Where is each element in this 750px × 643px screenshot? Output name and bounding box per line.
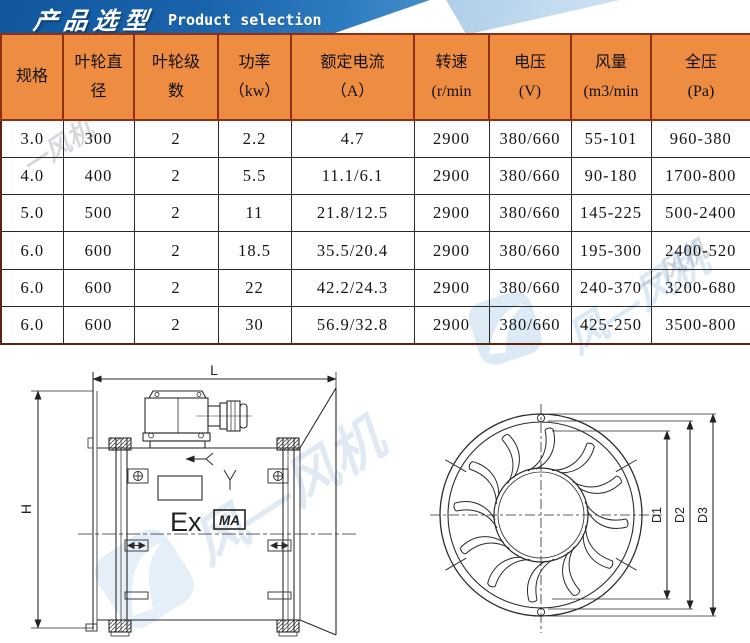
table-cell: 11 xyxy=(218,195,291,232)
header-line2: (r/min xyxy=(415,82,488,101)
table-row: 5.050021121.8/12.52900380/660145-225500-… xyxy=(1,195,750,232)
header-line1: 额定电流 xyxy=(292,53,413,72)
table-cell: 4.7 xyxy=(291,120,414,157)
table-cell: 380/660 xyxy=(489,269,571,306)
table-header-cell: 风量(m3/min xyxy=(571,34,651,120)
header-line1: 规格 xyxy=(2,67,62,86)
table-cell: 2 xyxy=(134,120,218,157)
header-line2: 径 xyxy=(64,82,133,101)
table-cell: 2900 xyxy=(414,232,489,269)
svg-text:MA: MA xyxy=(219,513,240,528)
table-header-cell: 电压(V) xyxy=(489,34,571,120)
table-header: 规格叶轮直径叶轮级数功率（kw）额定电流（A）转速(r/min电压(V)风量(m… xyxy=(1,34,750,120)
table-cell: 30 xyxy=(218,307,291,344)
table-cell: 5.5 xyxy=(218,157,291,194)
dim-label-length: L xyxy=(210,362,218,378)
dim-label-height: H xyxy=(18,504,34,514)
table-cell: 2900 xyxy=(414,120,489,157)
table-header-cell: 叶轮直径 xyxy=(63,34,134,120)
table-header-cell: 规格 xyxy=(1,34,63,120)
cable-gland xyxy=(196,401,252,431)
clamp xyxy=(128,469,288,483)
table-cell: 90-180 xyxy=(571,157,651,194)
table-cell: 960-380 xyxy=(651,120,750,157)
table-cell: 1700-800 xyxy=(651,157,750,194)
table-cell: 380/660 xyxy=(489,232,571,269)
table-cell: 2 xyxy=(134,195,218,232)
page-title: 产品选型 xyxy=(32,1,157,36)
banner: 产品选型 Product selection xyxy=(0,0,750,34)
table-header-cell: 全压(Pa) xyxy=(651,34,750,120)
table-cell: 380/660 xyxy=(489,157,571,194)
table-cell: 2900 xyxy=(414,307,489,344)
table-row: 6.0600218.535.5/20.42900380/660195-30024… xyxy=(1,232,750,269)
header-line1: 叶轮级 xyxy=(135,53,217,72)
table-cell: 2900 xyxy=(414,269,489,306)
impeller-front-view-drawing: D1 D2 D3 xyxy=(380,358,750,643)
table-header-cell: 叶轮级数 xyxy=(134,34,218,120)
table-cell: 2400-520 xyxy=(651,232,750,269)
table-cell: 35.5/20.4 xyxy=(291,232,414,269)
fan-side-view-drawing: L H Ex MA xyxy=(0,358,380,643)
table-row: 6.060023056.9/32.82900380/660425-2503500… xyxy=(1,307,750,344)
header-line1: 全压 xyxy=(652,53,750,72)
header-line2: 数 xyxy=(135,82,217,101)
header-line2: (m3/min xyxy=(572,82,650,101)
header-line1: 电压 xyxy=(490,53,570,72)
header-line1: 功率 xyxy=(219,53,290,72)
table-cell: 5.0 xyxy=(1,195,63,232)
table-cell: 145-225 xyxy=(571,195,651,232)
table-cell: 2 xyxy=(134,232,218,269)
header-line1: 转速 xyxy=(415,53,488,72)
table-cell: 300 xyxy=(63,120,134,157)
table-cell: 55-101 xyxy=(571,120,651,157)
table-cell: 195-300 xyxy=(571,232,651,269)
table-cell: 500-2400 xyxy=(651,195,750,232)
table-header-row: 规格叶轮直径叶轮级数功率（kw）额定电流（A）转速(r/min电压(V)风量(m… xyxy=(1,34,750,120)
table-cell: 2 xyxy=(134,307,218,344)
header-line1: 风量 xyxy=(572,53,650,72)
weld-symbol xyxy=(186,453,236,490)
table-cell: 3500-800 xyxy=(651,307,750,344)
name-plate xyxy=(158,476,202,500)
table-row: 3.030022.24.72900380/66055-101960-380 xyxy=(1,120,750,157)
table-row: 6.060022242.2/24.32900380/660240-3703200… xyxy=(1,269,750,306)
table-cell: 2 xyxy=(134,157,218,194)
header-line1: 叶轮直 xyxy=(64,53,133,72)
table-row: 4.040025.511.1/6.12900380/66090-1801700-… xyxy=(1,157,750,194)
table-cell: 42.2/24.3 xyxy=(291,269,414,306)
table-cell: 18.5 xyxy=(218,232,291,269)
table-cell: 22 xyxy=(218,269,291,306)
table-cell: 380/660 xyxy=(489,195,571,232)
table-header-cell: 功率（kw） xyxy=(218,34,291,120)
table-cell: 2 xyxy=(134,269,218,306)
table-cell: 2900 xyxy=(414,157,489,194)
table-cell: 21.8/12.5 xyxy=(291,195,414,232)
ex-marking: Ex xyxy=(170,507,202,537)
table-cell: 6.0 xyxy=(1,269,63,306)
product-selection-table: 规格叶轮直径叶轮级数功率（kw）额定电流（A）转速(r/min电压(V)风量(m… xyxy=(0,33,750,345)
header-line2: (Pa) xyxy=(652,82,750,101)
header-line2: （kw） xyxy=(219,82,290,101)
table-cell: 425-250 xyxy=(571,307,651,344)
table-cell: 3.0 xyxy=(1,120,63,157)
table-body: 3.030022.24.72900380/66055-101960-3804.0… xyxy=(1,120,750,344)
table-cell: 2.2 xyxy=(218,120,291,157)
table-cell: 600 xyxy=(63,269,134,306)
dim-label-d1: D1 xyxy=(650,507,664,523)
table-cell: 380/660 xyxy=(489,120,571,157)
table-header-cell: 额定电流（A） xyxy=(291,34,414,120)
header-line2: （A） xyxy=(292,82,413,101)
table-cell: 11.1/6.1 xyxy=(291,157,414,194)
table-cell: 6.0 xyxy=(1,232,63,269)
header-line2: (V) xyxy=(490,82,570,101)
technical-drawings: L H Ex MA xyxy=(0,358,750,643)
ma-marking: MA xyxy=(214,510,245,529)
clamp xyxy=(125,540,291,599)
table-cell: 3200-680 xyxy=(651,269,750,306)
table-cell: 500 xyxy=(63,195,134,232)
dim-label-d2: D2 xyxy=(673,507,687,523)
table-cell: 600 xyxy=(63,307,134,344)
dim-label-d3: D3 xyxy=(696,507,710,523)
table-header-cell: 转速(r/min xyxy=(414,34,489,120)
page-subtitle: Product selection xyxy=(168,11,322,29)
table-cell: 56.9/32.8 xyxy=(291,307,414,344)
table-cell: 4.0 xyxy=(1,157,63,194)
table-cell: 6.0 xyxy=(1,307,63,344)
junction-box xyxy=(143,391,210,448)
table-cell: 600 xyxy=(63,232,134,269)
table-cell: 400 xyxy=(63,157,134,194)
table-cell: 2900 xyxy=(414,195,489,232)
table-cell: 380/660 xyxy=(489,307,571,344)
table-cell: 240-370 xyxy=(571,269,651,306)
